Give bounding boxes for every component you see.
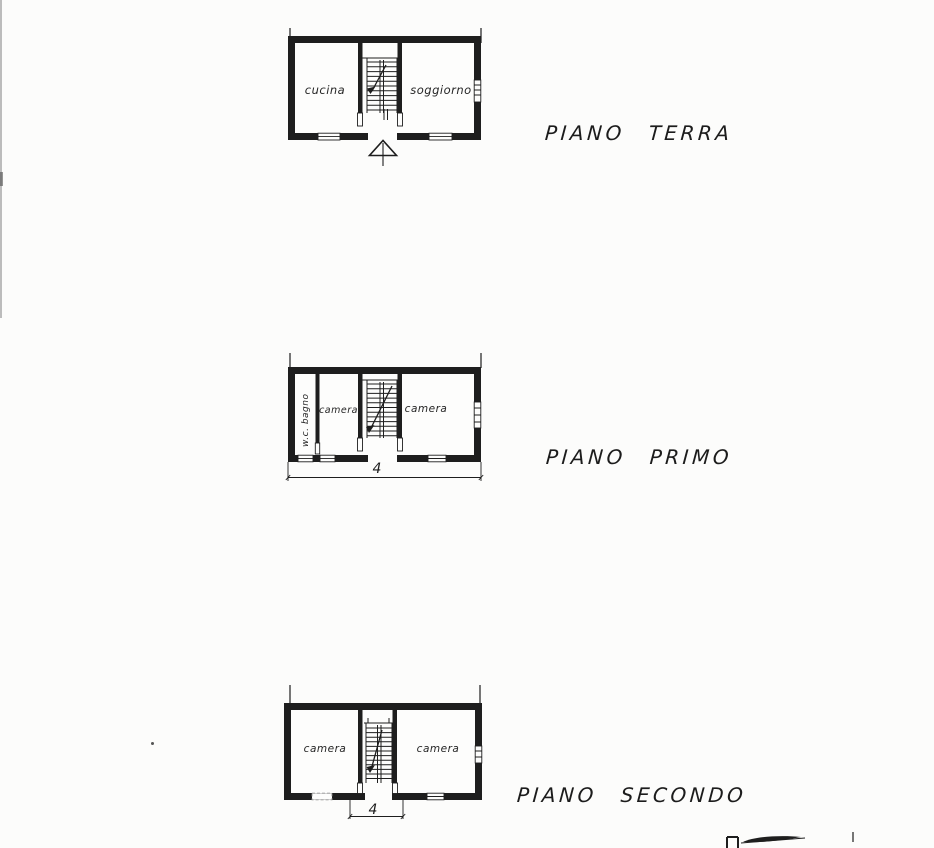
window-camera-left <box>312 793 332 800</box>
room-label-camera-right: camera <box>417 743 460 755</box>
scan-edge-blob <box>0 172 3 186</box>
cutoff-glyph <box>727 837 738 848</box>
floor-title-piano-secondo: PIANO SECONDO <box>516 783 747 807</box>
room-label-wc-bagno: w.c. bagno <box>301 394 311 447</box>
floor-plan-piano-terra: cucina soggiorno <box>283 24 488 169</box>
window-camera-right <box>428 455 446 462</box>
dimension-label: 4 <box>373 461 382 477</box>
drawing-sheet: cucina soggiorno PIANO TERRA <box>0 0 934 848</box>
floor-plan-piano-primo: 4 w.c. bagno camera camera <box>283 350 493 485</box>
room-label-camera-right: camera <box>405 403 448 415</box>
dimension-line <box>286 462 483 481</box>
entrance-arrow-icon <box>370 141 397 167</box>
window-right-wall <box>474 80 481 102</box>
door-opening <box>365 793 392 800</box>
window-camera-right <box>427 793 444 800</box>
floor-title-piano-primo: PIANO PRIMO <box>545 445 733 469</box>
window-camera-left <box>320 455 335 462</box>
room-label-camera-left: camera <box>304 743 347 755</box>
survey-tick-marks <box>290 685 480 704</box>
room-label-cucina: cucina <box>305 83 345 97</box>
scan-edge-artifact <box>0 0 2 318</box>
floor-title-piano-terra: PIANO TERRA <box>544 121 733 145</box>
scan-speck <box>151 742 154 745</box>
survey-tick-marks <box>290 353 481 368</box>
window-soggiorno <box>429 133 452 140</box>
floor-plan-piano-secondo: 4 camera camera <box>278 683 493 828</box>
room-label-soggiorno: soggiorno <box>410 83 471 97</box>
window-bagno <box>298 455 313 462</box>
window-cucina <box>318 133 340 140</box>
window-right-wall <box>475 746 482 763</box>
dimension-label: 4 <box>369 802 378 818</box>
entrance-opening <box>368 133 397 141</box>
window-right-wall <box>474 402 481 428</box>
bottom-edge-cutoff-marks <box>715 830 875 848</box>
room-label-camera-mid: camera <box>319 405 358 416</box>
